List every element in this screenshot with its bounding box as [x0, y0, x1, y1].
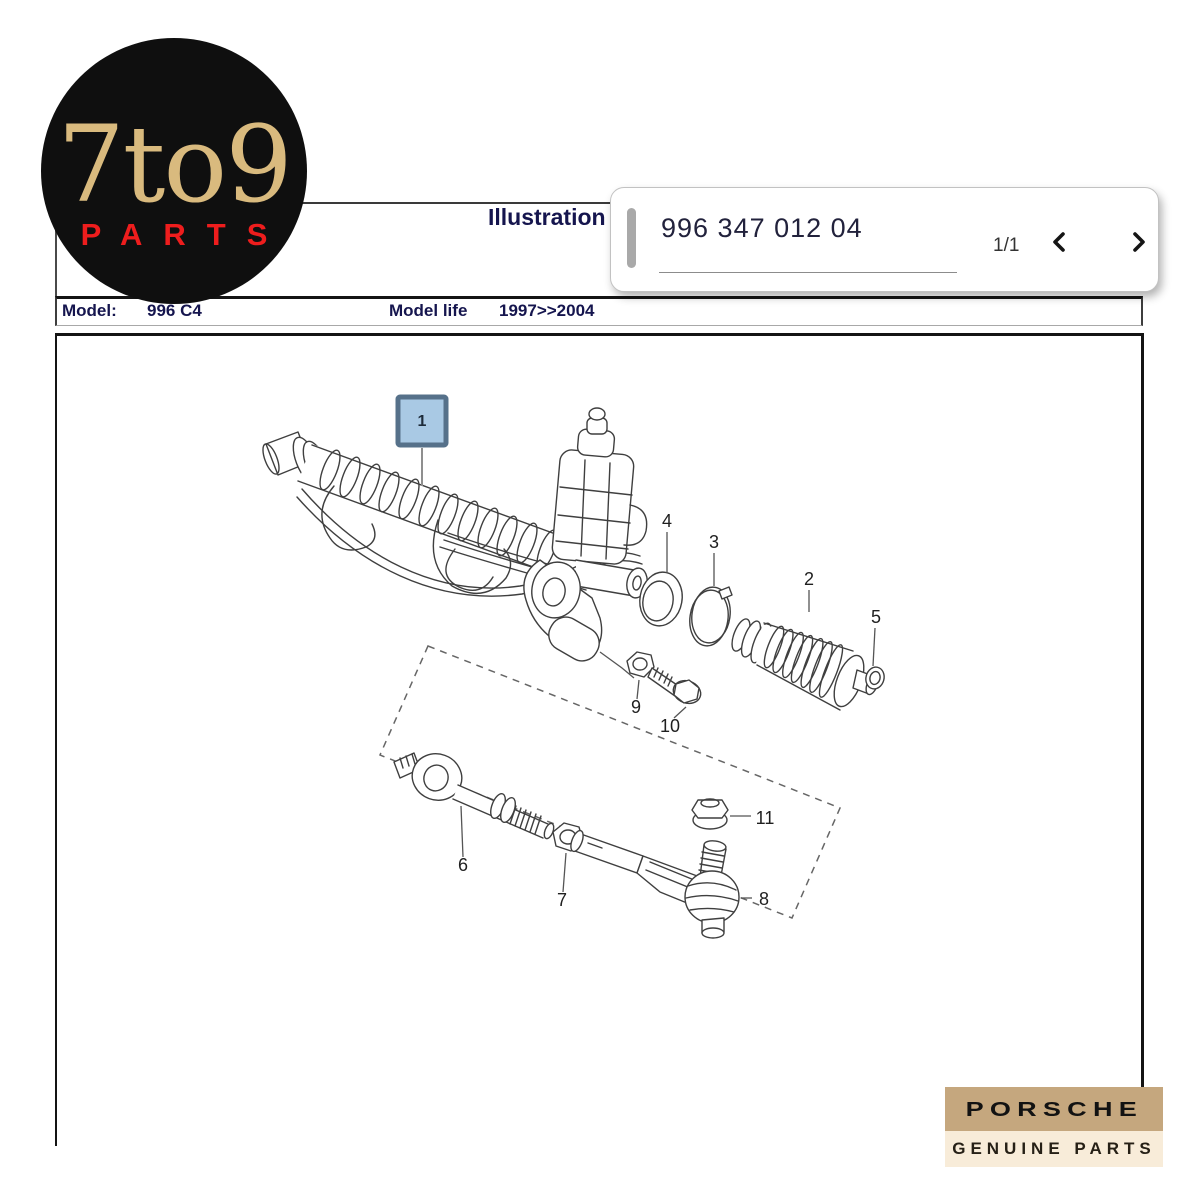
- page-indicator: 1/1: [993, 235, 1019, 257]
- porsche-wordmark: PORSCHE: [945, 1087, 1163, 1131]
- part-label-3: 3: [709, 532, 719, 552]
- part-label-11: 11: [756, 808, 775, 828]
- genuine-parts-text: GENUINE PARTS: [952, 1139, 1156, 1158]
- part-label-8: 8: [759, 889, 769, 909]
- part-3-clamp-ring: [686, 585, 733, 649]
- part-label-7: 7: [557, 890, 567, 910]
- part-number-toolbar: 996 347 012 04 1/1: [610, 187, 1159, 292]
- part-11-flange-nut: [692, 799, 728, 829]
- drag-handle[interactable]: [627, 208, 636, 268]
- logo-subtitle: PARTS: [41, 217, 307, 253]
- part-2-boot: [728, 617, 880, 711]
- porsche-genuine-parts-badge: PORSCHE GENUINE PARTS: [945, 1087, 1163, 1167]
- genuine-parts-label: GENUINE PARTS: [945, 1131, 1163, 1167]
- parts-catalog-page: Illustration Model: 996 C4 Model life 19…: [0, 0, 1200, 1200]
- part-8-tie-rod-end: [568, 829, 739, 938]
- next-button[interactable]: [1125, 228, 1153, 256]
- part-number-input[interactable]: 996 347 012 04: [661, 213, 863, 244]
- logo-7to9: 7to9 PARTS: [41, 38, 307, 304]
- part-label-4: 4: [662, 511, 672, 531]
- logo-title: 7to9: [41, 112, 307, 218]
- part-6-inner-tie-rod: [394, 747, 556, 840]
- part-label-2: 2: [804, 569, 814, 589]
- part-number-underline: [659, 272, 957, 273]
- chevron-right-icon: [1130, 230, 1148, 254]
- part-1-callout[interactable]: 1: [398, 397, 446, 486]
- part-label-1[interactable]: 1: [418, 413, 427, 430]
- part-label-10: 10: [660, 716, 680, 736]
- prev-button[interactable]: [1045, 228, 1073, 256]
- part-label-9: 9: [631, 697, 641, 717]
- chevron-left-icon: [1050, 230, 1068, 254]
- part-label-5: 5: [871, 607, 881, 627]
- porsche-wordmark-text: PORSCHE: [965, 1092, 1142, 1126]
- part-10-bolt: [648, 668, 704, 707]
- part-label-6: 6: [458, 855, 468, 875]
- steering-rack-assembly: [260, 408, 650, 678]
